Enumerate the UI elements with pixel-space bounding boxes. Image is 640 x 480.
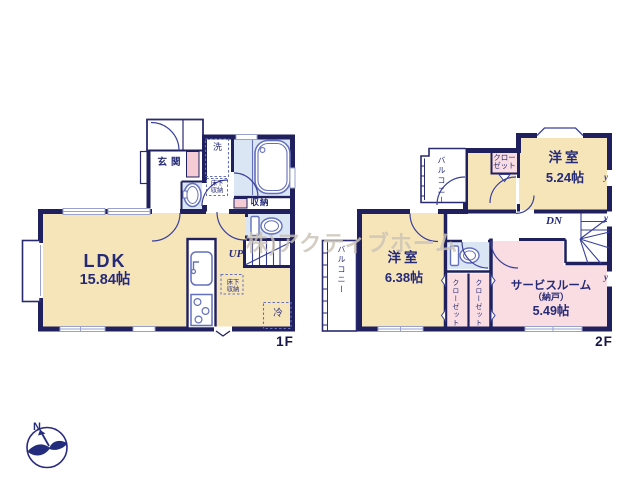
room-area-service: 5.49帖 — [505, 304, 597, 318]
label-refrigerator: 冷 — [266, 309, 290, 320]
floor-label-1f: 1F — [273, 334, 297, 349]
room-label-genkan: 玄関 — [150, 158, 192, 169]
vent-mark — [216, 331, 230, 336]
label-underfloor-storage-ldk: 床下収納 — [226, 279, 240, 293]
washbasin-icon — [183, 184, 201, 207]
room-label-laundry: 洗 — [206, 142, 229, 152]
room-label-service: サービスルーム — [505, 280, 597, 293]
storage-door — [234, 199, 247, 209]
label-closet-upper: クローゼット — [492, 154, 517, 171]
compass-north-label: N — [30, 421, 44, 433]
bathtub-icon — [253, 140, 291, 196]
room-area-ldk: 15.84帖 — [60, 272, 150, 288]
room-area-bedroom-638: 6.38帖 — [368, 271, 440, 286]
bay-window-ldk — [23, 241, 41, 302]
floorplan-page: 玄関 洗 床下収納 収納 LDK 15.84帖 UP 床下収納 冷 1F バルコ… — [0, 0, 640, 480]
stairs-dn-label: DN — [543, 215, 565, 227]
room-area-bedroom-524: 5.24帖 — [528, 171, 602, 186]
window-symbol-3: y — [604, 272, 608, 282]
floor-label-2f: 2F — [591, 334, 617, 349]
compass-north-icon — [27, 428, 68, 468]
kitchen-counter — [188, 239, 216, 329]
label-closet-left: クローゼット — [451, 277, 459, 329]
label-underfloor-storage-wash: 床下収納 — [210, 180, 224, 194]
stairs-up-label: UP — [226, 248, 246, 260]
entrance-step — [141, 152, 148, 184]
room-label-ldk: LDK — [65, 251, 145, 271]
label-closet-right: クローゼット — [474, 277, 482, 329]
room-label-bedroom-524: 洋室 — [530, 150, 600, 165]
label-balcony-upper: バルコニー — [436, 156, 445, 204]
window-symbol-2: y — [604, 213, 608, 223]
room-label-service-alias: （納戸） — [505, 292, 597, 302]
window-symbol-1: y — [604, 172, 608, 182]
company-watermark: 株)アクティブホーム — [246, 226, 458, 258]
room-label-storage: 収納 — [248, 198, 272, 208]
